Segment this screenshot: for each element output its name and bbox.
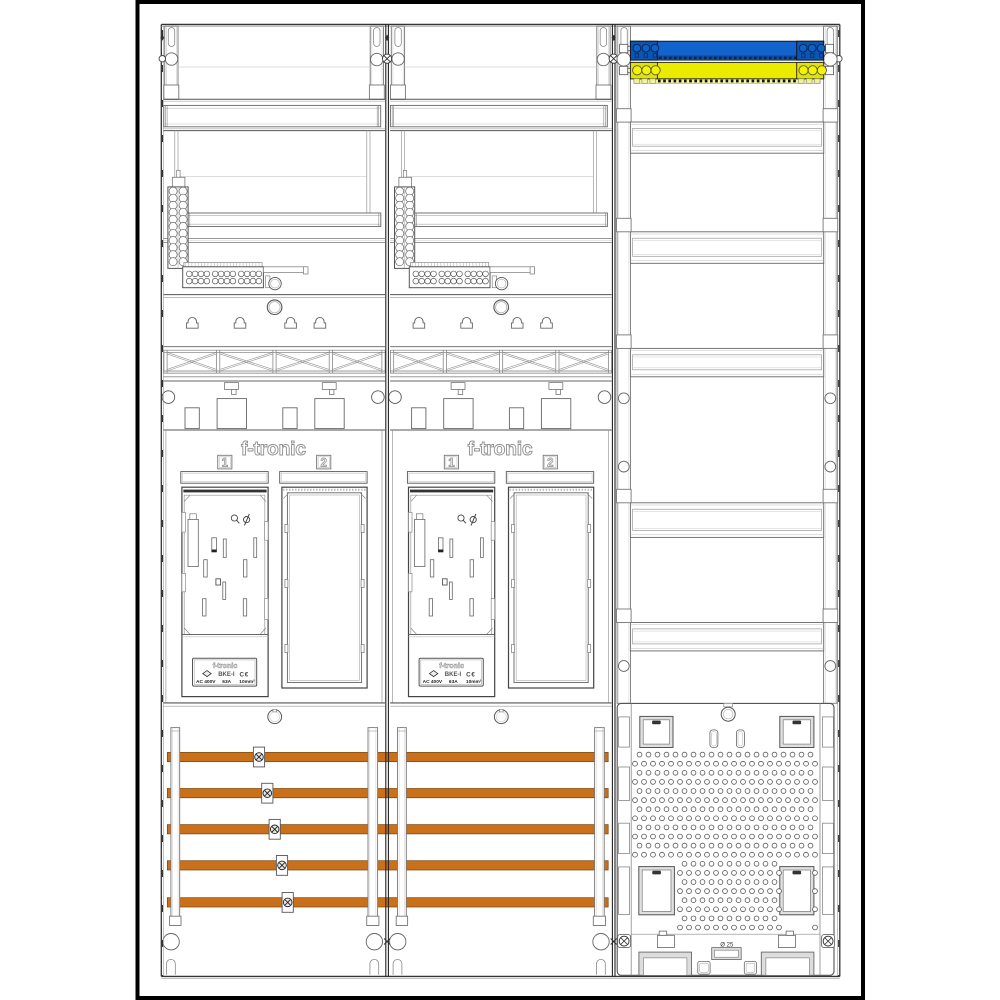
svg-text:Ø 25: Ø 25 (720, 942, 734, 948)
